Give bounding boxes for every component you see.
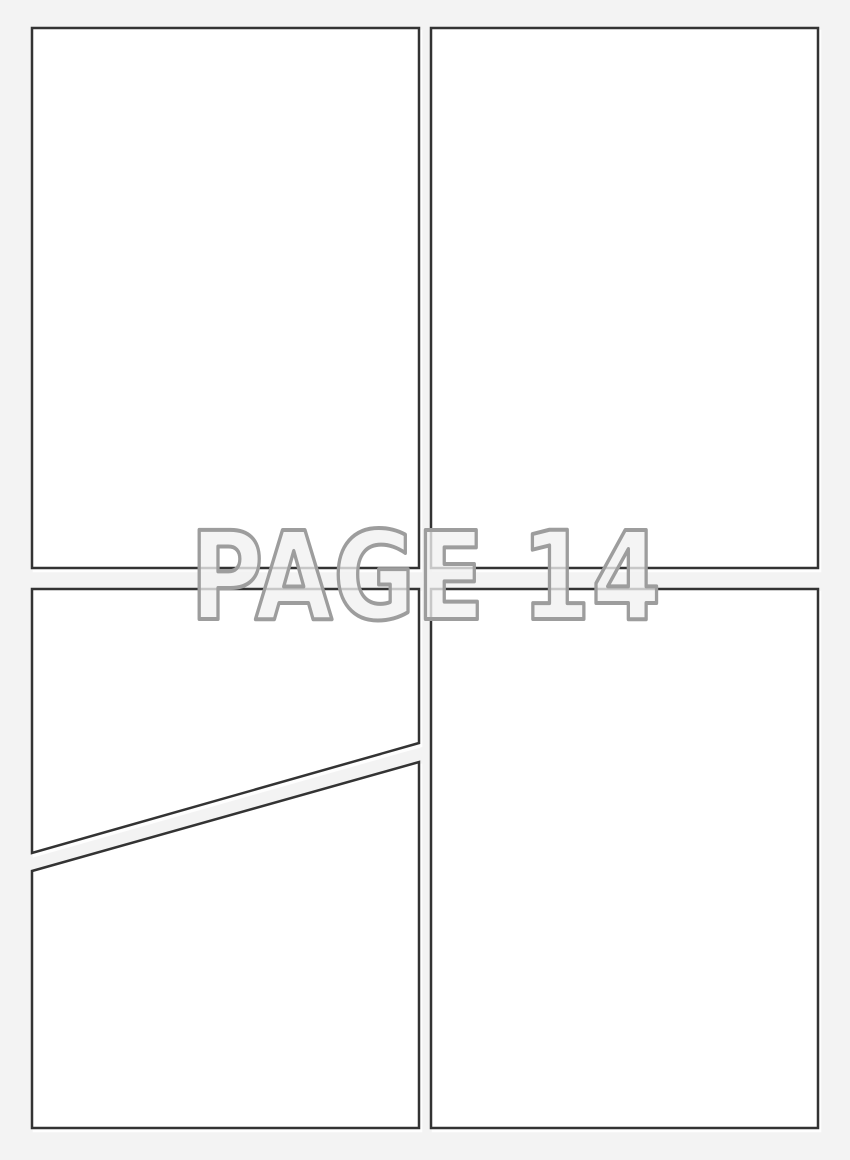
comic-page-template: PAGE 14 bbox=[0, 0, 850, 1160]
page-number-label: PAGE 14 bbox=[190, 506, 662, 648]
page-canvas: PAGE 14 bbox=[0, 0, 850, 1160]
panel-top-left bbox=[32, 28, 419, 568]
panel-top-right bbox=[431, 28, 818, 568]
panel-bottom-right bbox=[431, 589, 818, 1128]
